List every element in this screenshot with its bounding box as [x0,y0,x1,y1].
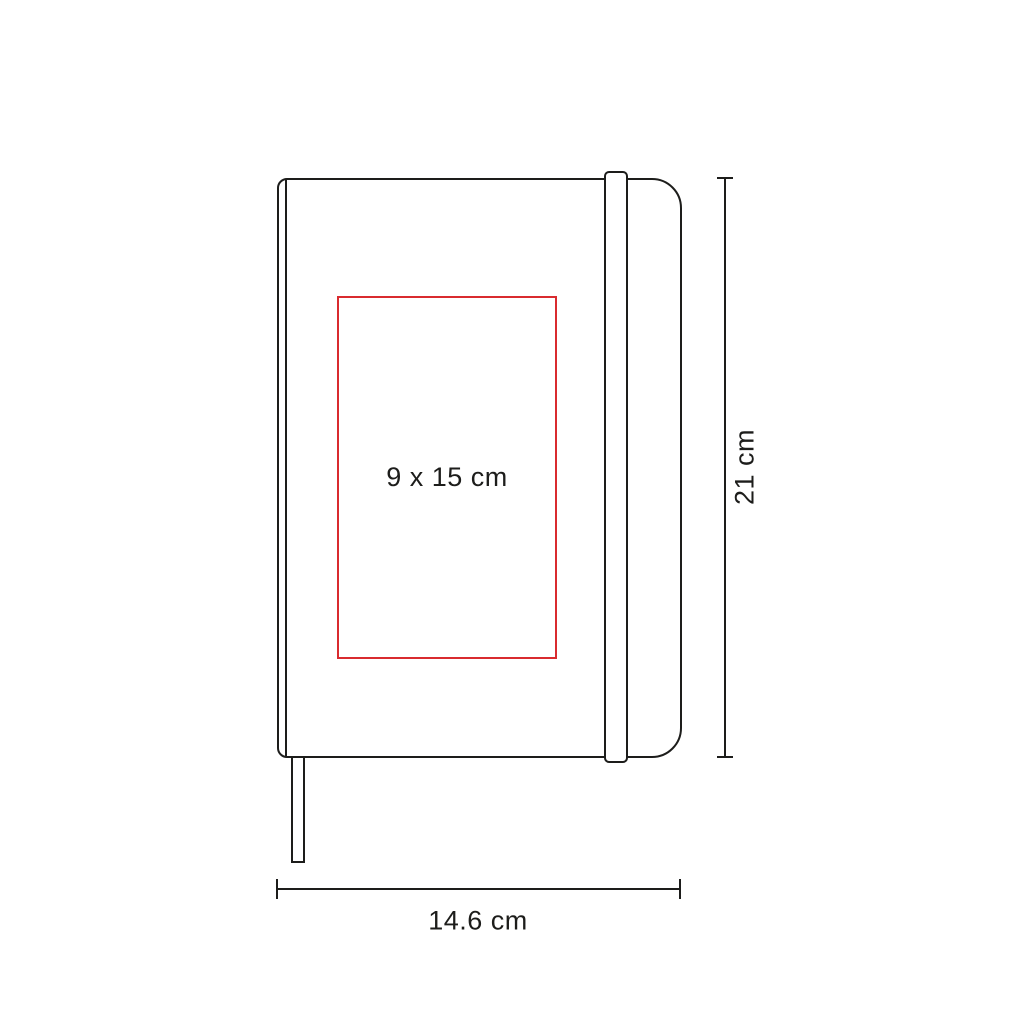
bookmark-ribbon [291,758,305,863]
width-dimension-label: 14.6 cm [428,906,528,937]
height-dimension-line [724,178,726,758]
print-area-box: 9 x 15 cm [337,296,557,659]
width-dimension-tick-left [276,879,278,899]
height-dimension-tick-top [717,177,733,179]
print-area-label: 9 x 15 cm [386,462,508,493]
height-dimension-tick-bottom [717,756,733,758]
height-dimension-label: 21 cm [730,429,761,505]
elastic-band [604,171,628,763]
width-dimension-tick-right [679,879,681,899]
width-dimension-line [277,888,681,890]
diagram-canvas: 9 x 15 cm 21 cm 14.6 cm [0,0,1024,1024]
notebook-spine-line [285,180,287,756]
